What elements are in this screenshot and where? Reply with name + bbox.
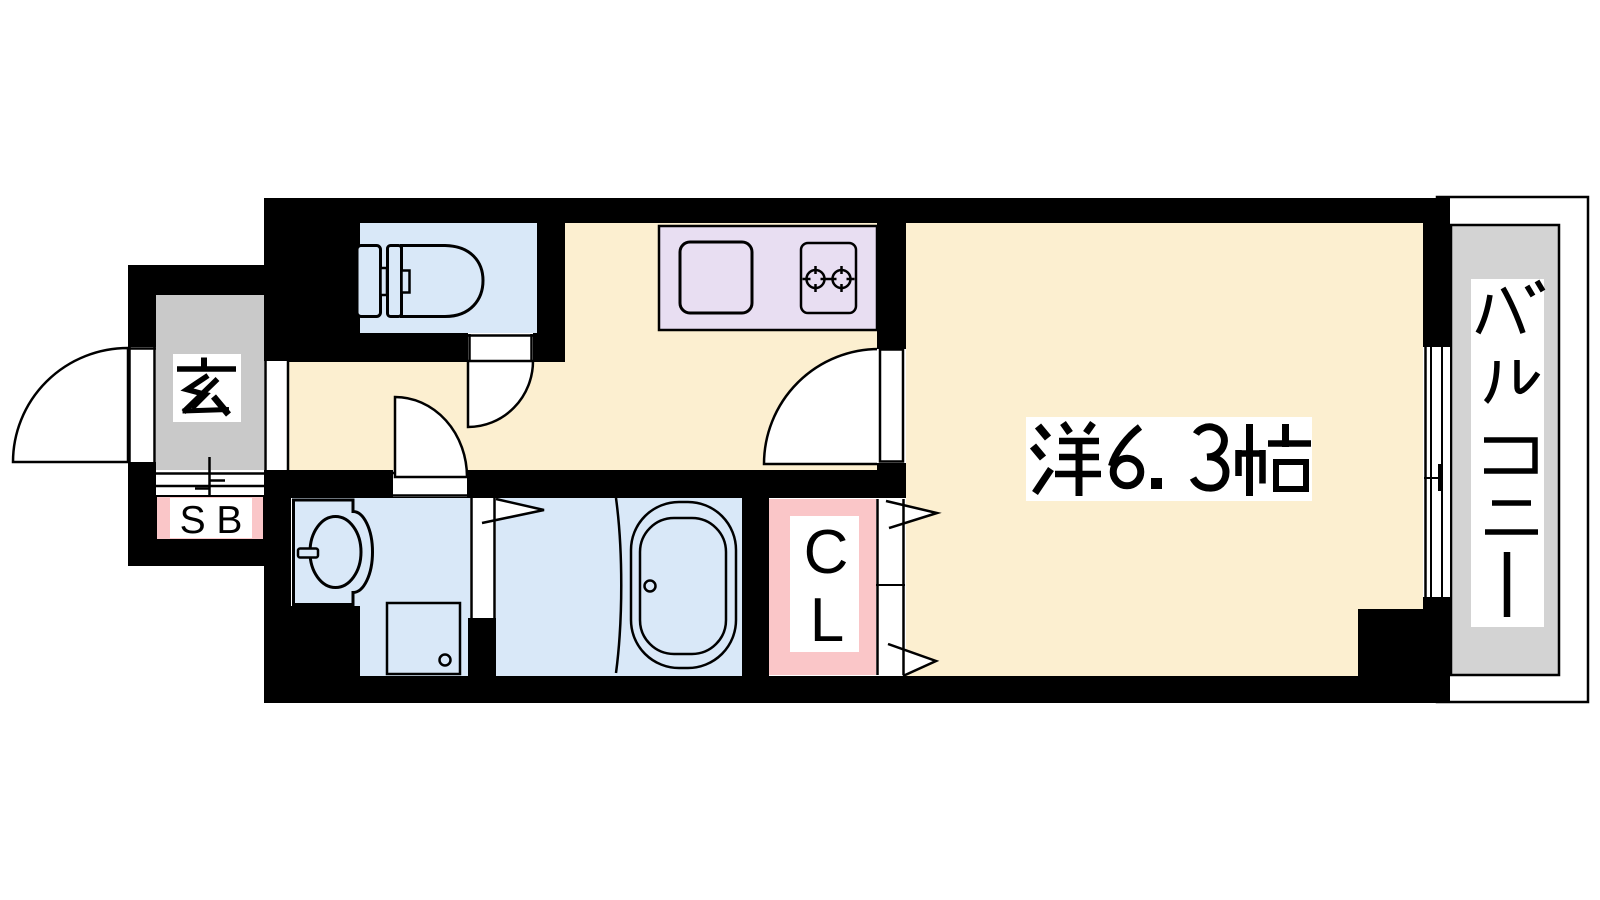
svg-text:L: L — [810, 586, 844, 655]
svg-text:S B: S B — [180, 499, 243, 542]
svg-text:C: C — [804, 518, 849, 587]
